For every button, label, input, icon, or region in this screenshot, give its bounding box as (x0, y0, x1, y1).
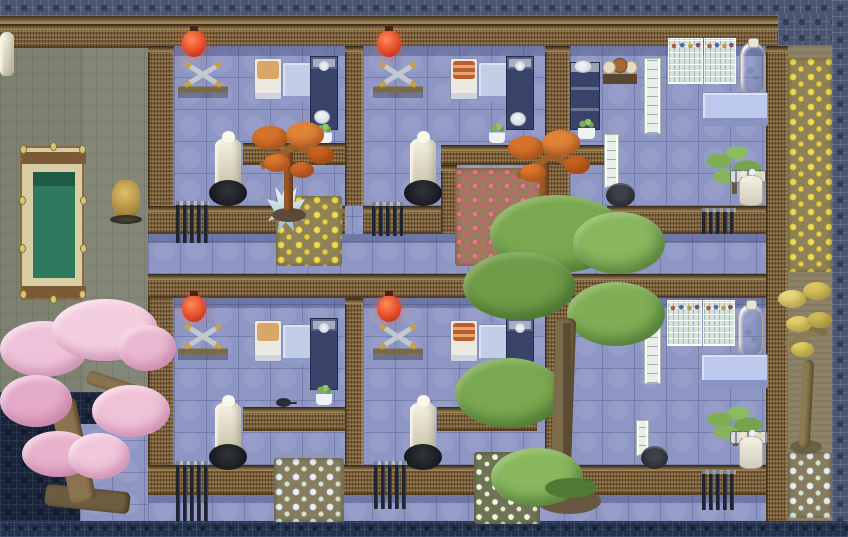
bed-room5[interactable] (450, 320, 478, 362)
border-top-right-corner (778, 14, 832, 46)
small-ladder-room3[interactable] (604, 134, 619, 188)
right-strip-flowers (788, 58, 832, 272)
small-white-statue (0, 32, 14, 76)
wire-shelf-room6-b[interactable] (703, 300, 735, 346)
mid-wall-lower (148, 274, 766, 298)
wall-room4-room5 (345, 298, 363, 465)
blue-table-room3[interactable] (702, 92, 768, 126)
plant-pot-room1 (316, 126, 332, 143)
bath-pool[interactable] (20, 146, 84, 300)
bath-pool-part (33, 172, 75, 278)
bath-pool-part (20, 290, 27, 299)
blue-table-room6[interactable] (701, 354, 768, 388)
pedestal-room1 (209, 180, 247, 206)
gate-room3[interactable] (702, 208, 736, 234)
bath-pool-part (80, 244, 87, 253)
bath-pool-part (19, 244, 26, 253)
pedestal-room4 (209, 444, 247, 470)
alcove-wall-room4 (243, 407, 345, 431)
pedestal-room2 (404, 180, 442, 206)
bath-pool-part (80, 196, 87, 205)
basin-room3 (574, 60, 592, 73)
wire-shelf-room3-a[interactable] (668, 38, 703, 84)
mid-wall-c (607, 206, 766, 234)
wall-right (766, 46, 788, 522)
alcove-wall-room5 (437, 407, 537, 431)
bath-pool-part (19, 196, 26, 205)
wire-shelf-room3-b[interactable] (704, 38, 736, 84)
wall-room2-room3 (545, 46, 570, 206)
lantern-room1 (182, 30, 206, 57)
bath-pool-part (50, 295, 57, 304)
jar-shelf-room3[interactable] (603, 52, 637, 84)
bath-pool-part (50, 142, 57, 151)
jug-room2 (510, 112, 526, 126)
alcove-wall-room1 (243, 143, 345, 165)
garden-room4 (274, 458, 344, 522)
plant-pot-room4 (316, 387, 332, 405)
bath-pool-part (22, 152, 86, 164)
sword-rack-room2[interactable] (373, 54, 423, 98)
cabinet-room5[interactable] (506, 318, 534, 366)
jug-room1 (314, 110, 330, 124)
sword-rack-room5[interactable] (373, 316, 423, 360)
large-vase-room6[interactable] (738, 304, 763, 356)
garden-center (455, 168, 541, 266)
gate-room6[interactable] (702, 470, 736, 510)
flower-vase-room3[interactable] (739, 175, 763, 206)
bottom-floor-shadow (148, 495, 766, 503)
ladder-shelf-room6[interactable] (644, 322, 661, 384)
dark-pot-room6[interactable] (641, 446, 668, 469)
bath-pool-part (20, 145, 27, 154)
ladder-shelf-room3[interactable] (644, 58, 661, 134)
right-strip-white-flowers (788, 452, 832, 518)
game-viewport (0, 0, 848, 537)
gate-room1[interactable] (176, 201, 209, 243)
garden-room5 (474, 452, 540, 524)
border-right (832, 0, 848, 537)
bath-pool-part (79, 145, 86, 154)
bath-pool-part (33, 172, 75, 186)
bed-room2[interactable] (450, 58, 478, 100)
pedestal-room5 (404, 444, 442, 470)
dark-pot-room3[interactable] (606, 183, 635, 207)
gate-room2[interactable] (372, 202, 403, 236)
plant-pot-room3 (578, 121, 595, 139)
wall-room1-room2 (345, 46, 363, 206)
bed-room1[interactable] (254, 58, 282, 100)
sword-rack-room4[interactable] (178, 316, 228, 360)
large-vase-room3[interactable] (740, 42, 765, 94)
mouse (276, 398, 291, 407)
gate-room4[interactable] (176, 461, 209, 521)
wire-shelf-room6-a[interactable] (667, 300, 702, 346)
flower-vase-room6[interactable] (739, 436, 763, 469)
stone-ornament[interactable] (112, 180, 140, 218)
alcove-wall-room2 (441, 145, 607, 165)
lantern-room2 (377, 30, 401, 57)
bath-pool-part (79, 290, 86, 299)
border-top (0, 0, 848, 16)
wall-room5-room6 (545, 298, 570, 465)
sword-rack-room1[interactable] (178, 54, 228, 98)
bottom-wall (148, 465, 766, 495)
cabinet-room4[interactable] (310, 318, 338, 390)
plant-pot-room2 (489, 126, 505, 143)
gate-room5[interactable] (374, 461, 407, 509)
wall-hanging-lantern (118, 324, 136, 354)
border-bottom (0, 521, 848, 537)
bed-room4[interactable] (254, 320, 282, 362)
